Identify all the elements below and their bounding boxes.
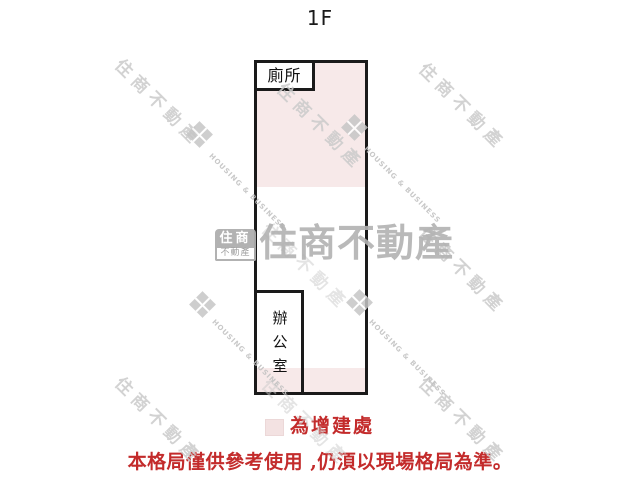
disclaimer-text: 本格局僅供參考使用 ,仍湏以現場格局為準。 — [0, 447, 640, 474]
room-office: 辦公室 — [254, 290, 304, 395]
legend-annex-label: 為增建處 — [290, 416, 374, 437]
watermark-brand-en: HOUSING & BUSINESS — [367, 318, 447, 398]
watermark-brand-diagonal: 住商不動產 — [110, 52, 209, 151]
brand-logo-top-label: 住商 — [215, 229, 256, 248]
legend: 為增建處 — [265, 416, 374, 437]
brand-diamond-logo-icon — [189, 291, 216, 318]
floorplan-outline: 廁所 辦公室 — [254, 60, 368, 395]
room-toilet: 廁所 — [254, 60, 315, 91]
floorplan-page: 1F 廁所 辦公室 為增建處 本格局僅供參考使用 ,仍湏以現場格局為準。 住商不… — [0, 0, 640, 480]
brand-diamond-logo-icon — [186, 121, 213, 148]
room-office-label: 辦公室 — [272, 310, 287, 382]
brand-logo-bottom-label: 不動產 — [215, 248, 256, 261]
watermark-brand-diagonal: 住商不動產 — [414, 56, 513, 155]
floor-title: 1F — [0, 6, 640, 30]
brand-logo-box: 住商 不動產 — [215, 229, 256, 261]
legend-annex-swatch — [265, 419, 284, 436]
watermark-brand-diagonal: 住商不動產 — [414, 220, 513, 319]
room-toilet-label: 廁所 — [267, 68, 301, 84]
watermark-brand-en: HOUSING & BUSINESS — [362, 145, 442, 225]
